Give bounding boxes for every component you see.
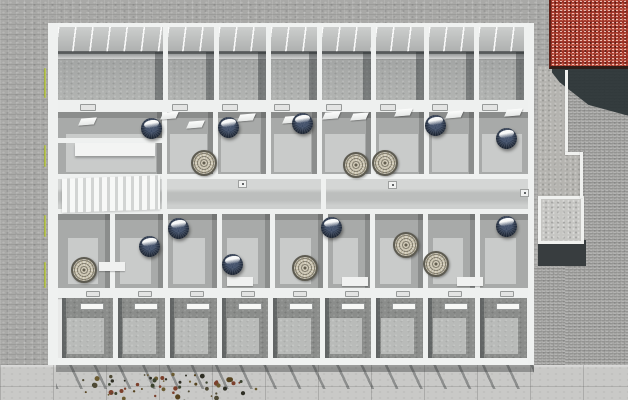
wall-plant [44, 145, 46, 167]
wall-plant [44, 68, 46, 98]
balcony-partition [371, 298, 376, 358]
corridor-divider [162, 174, 167, 214]
wall-shadow [105, 214, 110, 288]
room-partition [423, 214, 428, 288]
window-slit [172, 104, 188, 111]
pendant-lamp [425, 115, 446, 136]
wall-shadow [265, 214, 270, 288]
balcony-corner-shadow [480, 298, 484, 358]
window-slit [138, 291, 152, 297]
glass-railing [58, 23, 163, 54]
balcony-vent-slit [134, 303, 158, 310]
window-slit [241, 291, 255, 297]
window-slit [500, 291, 514, 297]
glass-railing [219, 23, 266, 54]
balcony-floor-bottom-sunlit [278, 318, 311, 354]
room-partition [370, 214, 375, 288]
pendant-lamp [139, 236, 160, 257]
pendant-lamp [141, 118, 162, 139]
pendant-lamp [321, 217, 342, 238]
room-partition [266, 112, 271, 174]
balcony-partition [317, 23, 322, 112]
balcony-corner-shadow [428, 298, 432, 358]
round-rug [71, 257, 97, 283]
aerial-building-render [0, 0, 628, 400]
room-partition [217, 214, 222, 288]
balcony-floor-bottom-sunlit [227, 318, 259, 354]
round-rug [292, 255, 318, 281]
balcony-vent-slit [186, 303, 210, 310]
round-rug [423, 251, 449, 277]
wall-shadow [261, 112, 266, 174]
round-rug [393, 232, 419, 258]
balcony-corner-shadow [516, 52, 524, 100]
balcony-floor-bottom-sunlit [67, 318, 104, 354]
pendant-lamp [168, 218, 189, 239]
glass-railing [376, 23, 424, 54]
balcony-corner-shadow [170, 298, 174, 358]
window-slit [396, 291, 410, 297]
wall-shadow [469, 112, 474, 174]
balcony-corner-shadow [325, 298, 329, 358]
window-slit [274, 104, 290, 111]
sunlit-floor-patch [485, 238, 516, 284]
glass-railing [429, 23, 474, 54]
balcony-partition [475, 298, 480, 358]
floor-mat [227, 277, 253, 286]
railing-shadow-grid [56, 365, 534, 389]
window-slit [432, 104, 448, 111]
balcony-corner-shadow [222, 298, 226, 358]
sandy-concrete-strip [538, 155, 583, 196]
glass-railing [479, 23, 524, 54]
door-dot [388, 181, 397, 189]
room-partition [162, 112, 167, 174]
balcony-corner-shadow [309, 52, 317, 100]
balcony-partition [474, 23, 479, 112]
sunlit-floor-patch [173, 238, 205, 284]
balcony-partition [217, 298, 222, 358]
balcony-floor-bottom-sunlit [123, 318, 156, 354]
pendant-lamp [292, 113, 313, 134]
glass-railing [168, 23, 214, 54]
floor-mat [342, 277, 368, 286]
window-slit [448, 291, 462, 297]
glass-railing [322, 23, 371, 54]
window-slit [380, 104, 396, 111]
top-rail [56, 23, 530, 27]
sunlit-floor-patch [274, 134, 311, 172]
pendant-lamp [218, 117, 239, 138]
window-slit [222, 104, 238, 111]
left-exterior-wall [48, 23, 58, 365]
railing-shadow-wedge [58, 51, 163, 60]
room-top-shadow [58, 214, 528, 220]
balcony-partition [371, 23, 376, 112]
balcony-corner-shadow [273, 298, 277, 358]
balcony-corner-shadow [118, 298, 122, 358]
stair-landing [62, 175, 160, 212]
white-curb [565, 70, 568, 155]
window-slit [190, 291, 204, 297]
concrete-pad [538, 196, 584, 244]
balcony-corner-shadow [62, 298, 66, 358]
balcony-partition [423, 298, 428, 358]
balcony-partition [424, 23, 429, 112]
round-rug [343, 152, 369, 178]
fine-paver-area [534, 266, 565, 365]
balcony-corner-shadow [206, 52, 214, 100]
balcony-vent-slit [341, 303, 365, 310]
room-partition [163, 214, 168, 288]
balcony-floor-bottom-sunlit [330, 318, 362, 354]
floor-mat [457, 277, 483, 286]
glass-railing [271, 23, 317, 54]
corridor-divider [321, 174, 326, 214]
balcony-partition [163, 23, 168, 112]
balcony-vent-slit [496, 303, 520, 310]
room-partition [317, 112, 322, 174]
pendant-lamp [496, 128, 517, 149]
window-slit [86, 291, 100, 297]
room-partition [474, 112, 479, 174]
round-rug [372, 150, 398, 176]
balcony-corner-shadow [155, 52, 163, 100]
pendant-lamp [222, 254, 243, 275]
floor-mat [99, 262, 125, 271]
balcony-partition [266, 23, 271, 112]
balcony-floor-top [58, 59, 163, 100]
balcony-floor-bottom-sunlit [175, 318, 208, 354]
bench [75, 143, 155, 156]
wall-shadow [418, 214, 423, 288]
window-slit [326, 104, 342, 111]
room-partition [270, 214, 275, 288]
balcony-partition [214, 23, 219, 112]
balcony-partition [320, 298, 325, 358]
balcony-vent-slit [444, 303, 468, 310]
window-slit [345, 291, 359, 297]
balcony-corner-shadow [363, 52, 371, 100]
wall-shadow [419, 112, 424, 174]
white-curb [580, 152, 583, 198]
wall-shadow [212, 214, 217, 288]
door-dot [238, 180, 247, 188]
bottom-rail [56, 358, 534, 365]
balcony-vent-slit [80, 303, 104, 310]
balcony-vent-slit [392, 303, 416, 310]
window-slit [80, 104, 96, 111]
balcony-vent-slit [289, 303, 313, 310]
door-dot [520, 189, 529, 197]
balcony-partition [268, 298, 273, 358]
balcony-corner-shadow [258, 52, 266, 100]
balcony-corner-shadow [376, 298, 380, 358]
wall-plant [44, 215, 46, 237]
window-slit [293, 291, 307, 297]
room-partition [110, 214, 115, 288]
balcony-floor-bottom-sunlit [433, 318, 466, 354]
balcony-partition [165, 298, 170, 358]
wall-plant [44, 262, 46, 288]
balcony-floor-bottom-sunlit [381, 318, 414, 354]
balcony-corner-shadow [466, 52, 474, 100]
balcony-partition [113, 298, 118, 358]
balcony-corner-shadow [416, 52, 424, 100]
sunlit-floor-patch [221, 134, 260, 172]
sunlit-floor-patch [432, 134, 468, 172]
window-slit [482, 104, 498, 111]
red-gravel-roof [549, 0, 628, 69]
round-rug [191, 150, 217, 176]
balcony-vent-slit [238, 303, 262, 310]
balcony-floor-bottom-sunlit [485, 318, 518, 354]
pendant-lamp [496, 216, 517, 237]
